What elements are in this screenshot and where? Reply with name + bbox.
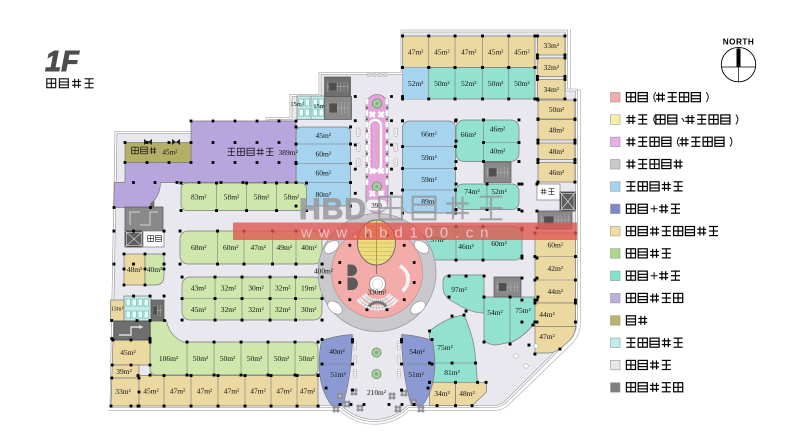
svg-text:1F: 1F: [45, 46, 80, 78]
svg-text:52m²: 52m²: [491, 187, 507, 196]
svg-text:59m²: 59m²: [421, 175, 437, 184]
svg-text:www.hbd100.cn: www.hbd100.cn: [300, 225, 495, 242]
svg-text:60m²: 60m²: [315, 169, 331, 178]
svg-text:44m²: 44m²: [547, 287, 563, 296]
svg-text:60m²: 60m²: [547, 240, 563, 249]
svg-text:33m²: 33m²: [115, 387, 131, 396]
svg-text:47m²: 47m²: [300, 386, 316, 395]
svg-text:32m²: 32m²: [275, 305, 291, 314]
svg-text:54m²: 54m²: [409, 347, 425, 356]
svg-text:30m²: 30m²: [248, 283, 264, 292]
svg-text:30m²: 30m²: [301, 305, 317, 314]
svg-text:106m²: 106m²: [159, 354, 179, 363]
svg-text:60m²: 60m²: [223, 243, 239, 252]
svg-text:50m²: 50m²: [274, 354, 290, 363]
svg-text:74m²: 74m²: [464, 187, 480, 196]
svg-text:32m²: 32m²: [543, 63, 559, 72]
svg-text:32m²: 32m²: [275, 283, 291, 292]
svg-text:210m²: 210m²: [367, 388, 387, 397]
svg-text:52m²: 52m²: [461, 79, 477, 88]
svg-text:58m²: 58m²: [254, 192, 270, 201]
svg-text:32m²: 32m²: [248, 305, 264, 314]
svg-text:58m²: 58m²: [284, 192, 300, 201]
svg-text:51m²: 51m²: [408, 370, 424, 379]
svg-text:40m²: 40m²: [147, 265, 163, 274]
svg-text:75m²: 75m²: [437, 343, 453, 352]
svg-text:45m²: 45m²: [191, 305, 207, 314]
svg-text:47m²: 47m²: [224, 386, 240, 395]
svg-text:45m²: 45m²: [120, 348, 136, 357]
svg-text:48m²: 48m²: [127, 265, 143, 274]
svg-text:50m²: 50m²: [514, 79, 530, 88]
svg-text:NORTH: NORTH: [723, 38, 755, 47]
svg-text:66m²: 66m²: [421, 129, 437, 138]
svg-text:46m²: 46m²: [490, 125, 506, 134]
svg-text:59m²: 59m²: [421, 153, 437, 162]
svg-text:34m²: 34m²: [434, 389, 450, 398]
svg-text:47m²: 47m²: [197, 386, 213, 395]
svg-text:45m²: 45m²: [488, 47, 504, 56]
svg-text:40m²: 40m²: [490, 147, 506, 156]
svg-text:19m²: 19m²: [301, 283, 317, 292]
svg-text:42m²: 42m²: [547, 264, 563, 273]
svg-text:47m²: 47m²: [408, 47, 424, 56]
svg-text:45m²: 45m²: [162, 149, 177, 157]
svg-text:50m²: 50m²: [299, 354, 315, 363]
svg-text:48m²: 48m²: [549, 147, 565, 156]
svg-text:389m²: 389m²: [278, 148, 298, 157]
svg-text:50m²: 50m²: [193, 354, 209, 363]
svg-text:60m²: 60m²: [315, 149, 331, 158]
svg-text:66m²: 66m²: [461, 130, 477, 139]
svg-text:47m²: 47m²: [250, 386, 266, 395]
svg-text:13m²: 13m²: [111, 306, 124, 313]
svg-text:34m²: 34m²: [543, 85, 559, 94]
svg-text:54m²: 54m²: [487, 308, 503, 317]
svg-text:48m²: 48m²: [459, 389, 475, 398]
svg-text:50m²: 50m²: [434, 79, 450, 88]
svg-text:40m²: 40m²: [301, 243, 317, 252]
svg-text:47m²: 47m²: [461, 47, 477, 56]
svg-text:75m²: 75m²: [515, 306, 531, 315]
svg-text:52m²: 52m²: [408, 79, 424, 88]
svg-text:47m²: 47m²: [250, 243, 266, 252]
svg-text:97m²: 97m²: [451, 285, 467, 294]
svg-text:15m²: 15m²: [290, 101, 303, 108]
svg-text:45m²: 45m²: [315, 131, 331, 140]
svg-text:45m²: 45m²: [143, 386, 159, 395]
svg-text:48m²: 48m²: [549, 125, 565, 134]
svg-text:44m²: 44m²: [539, 310, 555, 319]
svg-text:51m²: 51m²: [330, 370, 346, 379]
svg-text:33m²: 33m²: [543, 41, 559, 50]
svg-text:50m²: 50m²: [488, 79, 504, 88]
svg-text:32m²: 32m²: [221, 305, 237, 314]
svg-text:46m²: 46m²: [549, 168, 565, 177]
svg-text:46m²: 46m²: [458, 242, 474, 251]
svg-text:50m²: 50m²: [549, 105, 565, 114]
svg-text:45m²: 45m²: [514, 47, 530, 56]
svg-text:58m²: 58m²: [224, 192, 240, 201]
svg-text:49m²: 49m²: [276, 243, 292, 252]
svg-text:39m²: 39m²: [116, 367, 132, 376]
svg-text:50m²: 50m²: [247, 354, 263, 363]
svg-text:43m²: 43m²: [191, 283, 207, 292]
svg-text:32m²: 32m²: [221, 283, 237, 292]
svg-text:HBD: HBD: [299, 193, 367, 226]
svg-text:47m²: 47m²: [539, 332, 555, 341]
svg-text:330m²: 330m²: [367, 288, 387, 297]
svg-text:83m²: 83m²: [191, 192, 207, 201]
svg-text:40m²: 40m²: [329, 347, 345, 356]
svg-text:45m²: 45m²: [434, 47, 450, 56]
svg-text:47m²: 47m²: [170, 386, 186, 395]
svg-text:50m²: 50m²: [220, 354, 236, 363]
svg-text:81m²: 81m²: [444, 368, 460, 377]
svg-text:47m²: 47m²: [276, 386, 292, 395]
svg-text:68m²: 68m²: [191, 243, 207, 252]
svg-text:400m²: 400m²: [314, 267, 334, 276]
